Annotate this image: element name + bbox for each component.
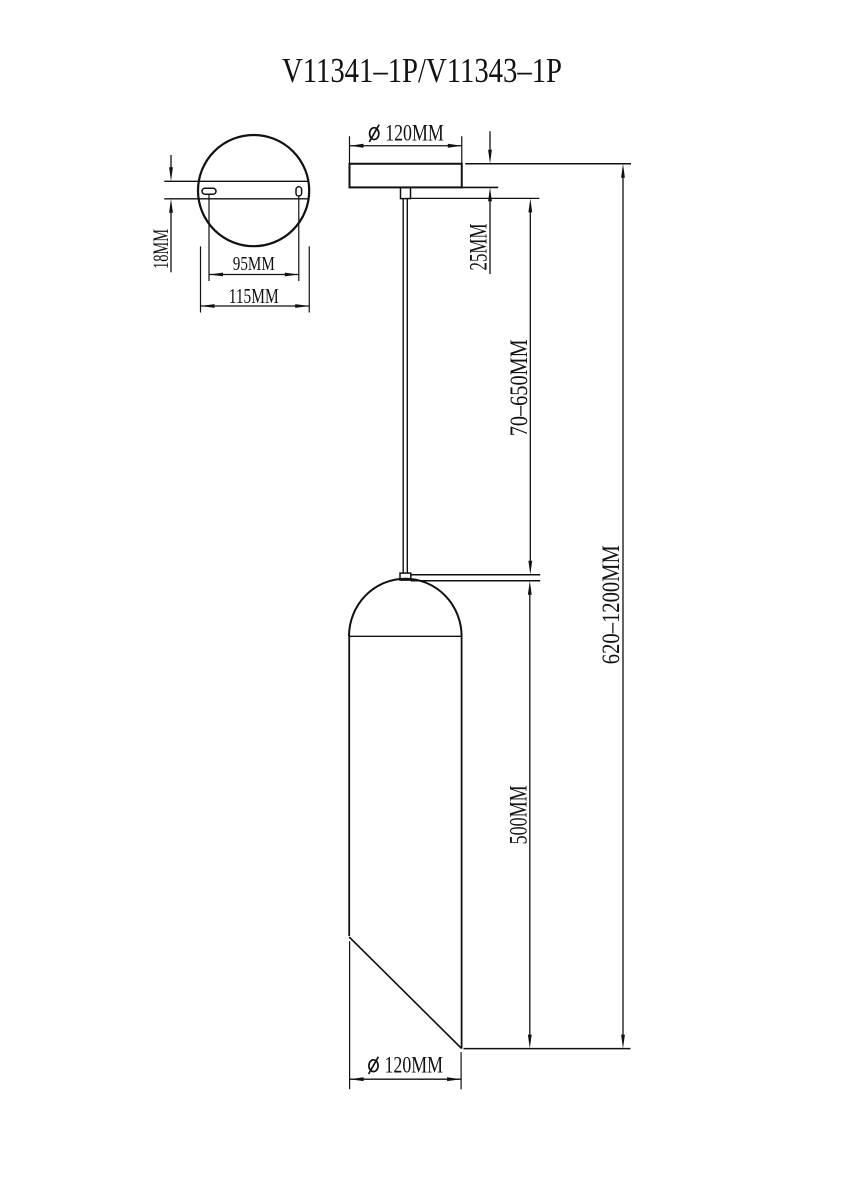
svg-text:70–650MM: 70–650MM (504, 339, 533, 436)
svg-text:120MM: 120MM (385, 120, 444, 146)
svg-text:115MM: 115MM (229, 284, 279, 308)
svg-text:120MM: 120MM (385, 1052, 444, 1078)
svg-text:V11341–1P/V11343–1P: V11341–1P/V11343–1P (282, 51, 562, 90)
svg-text:620–1200MM: 620–1200MM (596, 545, 625, 664)
svg-text:18MM: 18MM (148, 229, 173, 269)
svg-text:500MM: 500MM (504, 785, 533, 844)
svg-text:25MM: 25MM (464, 224, 493, 271)
svg-text:95MM: 95MM (233, 253, 275, 275)
